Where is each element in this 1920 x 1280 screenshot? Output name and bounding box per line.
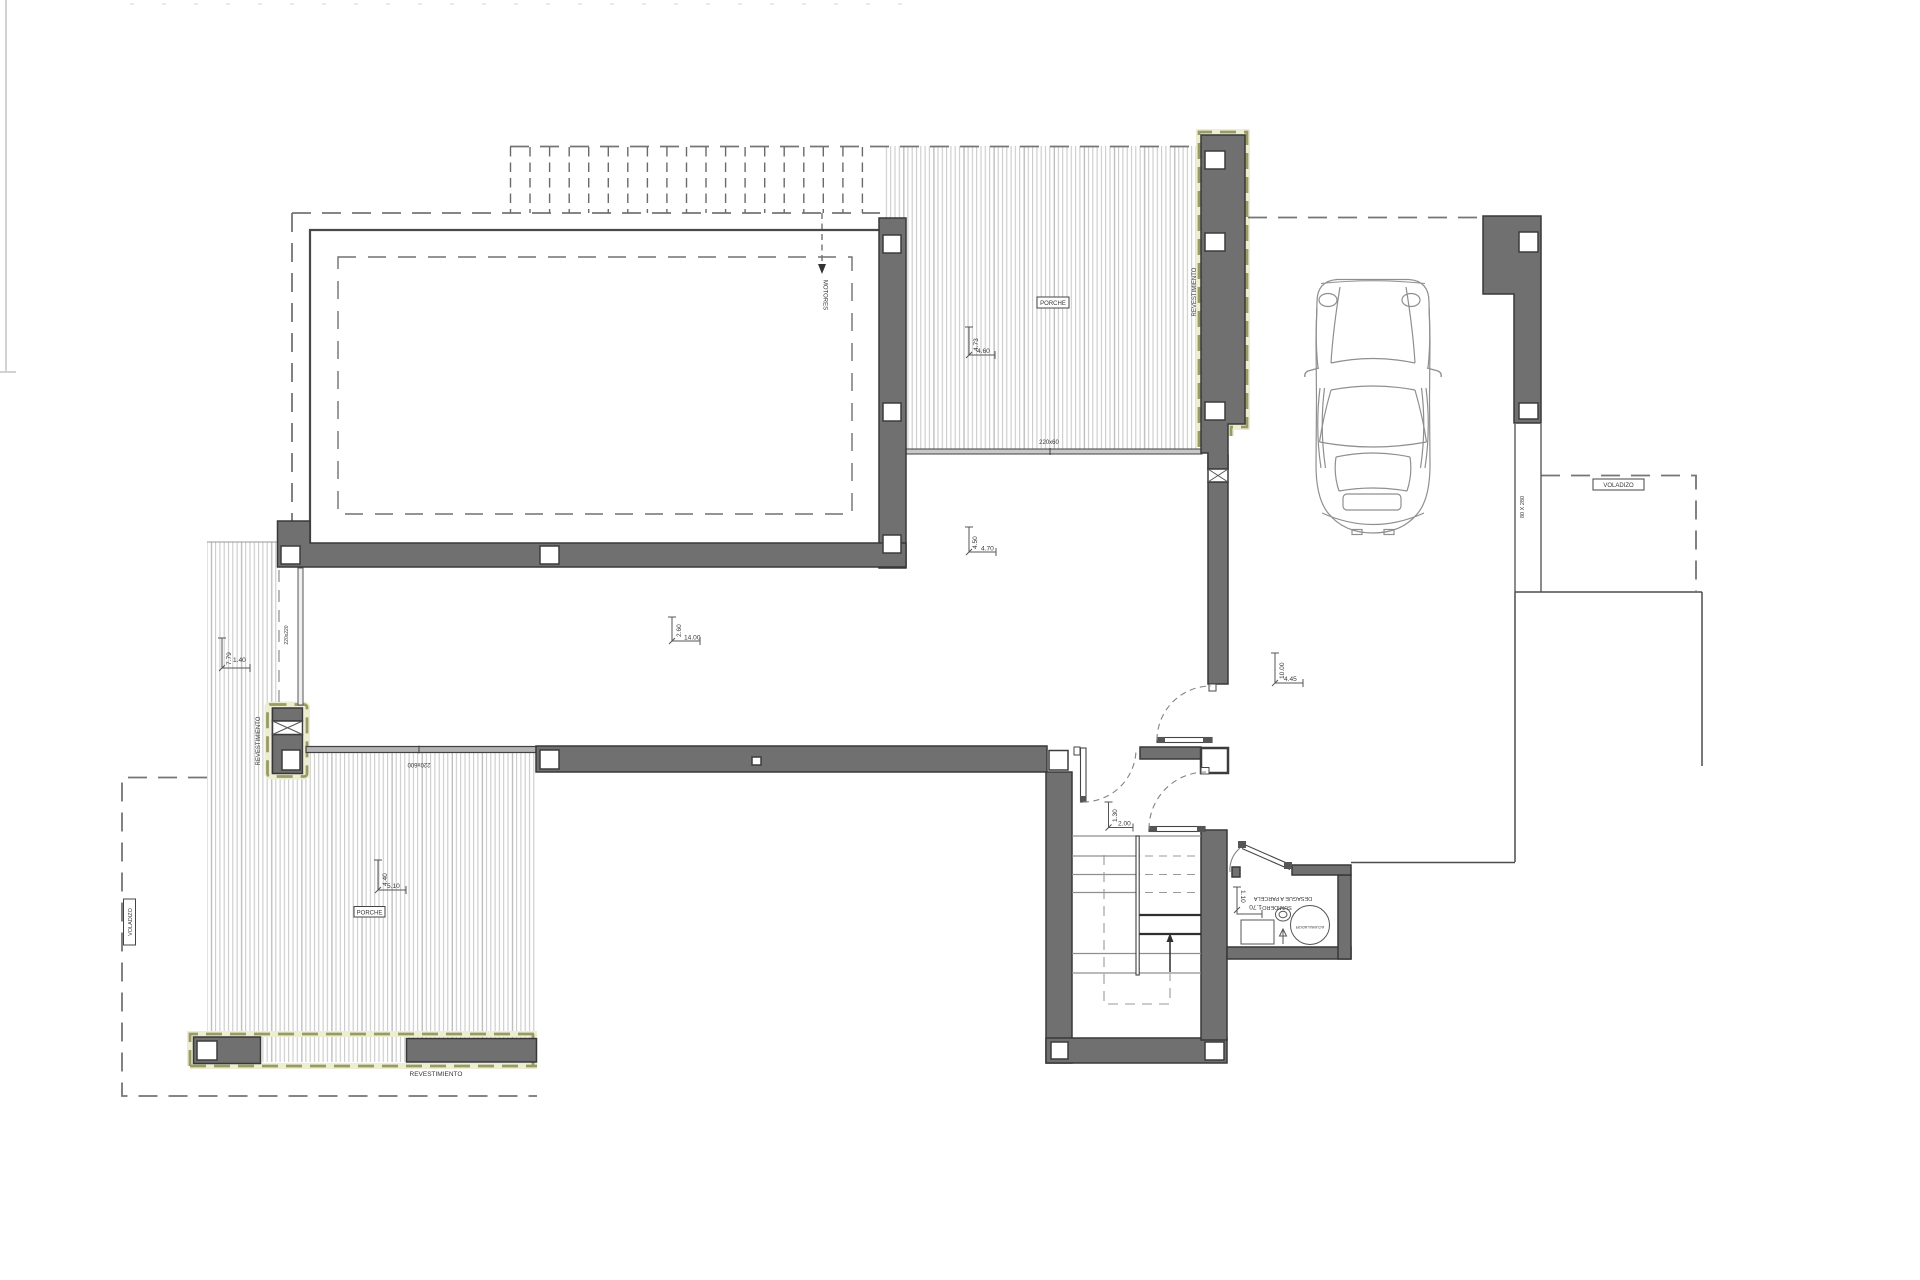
svg-text:2.60: 2.60 [676,624,683,637]
svg-text:1.40: 1.40 [233,657,246,664]
svg-text:PORCHE: PORCHE [357,911,383,917]
svg-text:220x60: 220x60 [1039,440,1059,446]
svg-text:220x220: 220x220 [284,625,290,644]
svg-text:4.45: 4.45 [1284,676,1297,683]
svg-text:4.60: 4.60 [977,348,990,355]
svg-text:VOLADIZO: VOLADIZO [128,907,134,936]
svg-text:4.70: 4.70 [981,546,994,553]
svg-text:220x600: 220x600 [407,761,431,767]
svg-text:4.50: 4.50 [972,536,979,549]
svg-text:1.10: 1.10 [1239,890,1246,903]
svg-text:2.00: 2.00 [1118,821,1131,828]
svg-text:MOTORES: MOTORES [822,280,828,310]
svg-text:14.00: 14.00 [684,635,701,642]
svg-text:1.70: 1.70 [1249,903,1262,910]
svg-text:80 X 280: 80 X 280 [1520,496,1526,518]
svg-text:5.10: 5.10 [387,883,400,890]
svg-text:REVESTIMIENTO: REVESTIMIENTO [256,716,262,765]
svg-text:PORCHE: PORCHE [1040,301,1066,307]
svg-text:REVESTIMIENTO: REVESTIMIENTO [1192,267,1198,316]
svg-text:7.79: 7.79 [226,652,233,665]
svg-text:DESAGUE A PARCELA: DESAGUE A PARCELA [1254,895,1313,901]
svg-text:REVESTIMIENTO: REVESTIMIENTO [410,1071,463,1078]
svg-text:ACUMULADOR: ACUMULADOR [1296,925,1325,930]
svg-text:VOLADIZO: VOLADIZO [1603,483,1634,489]
